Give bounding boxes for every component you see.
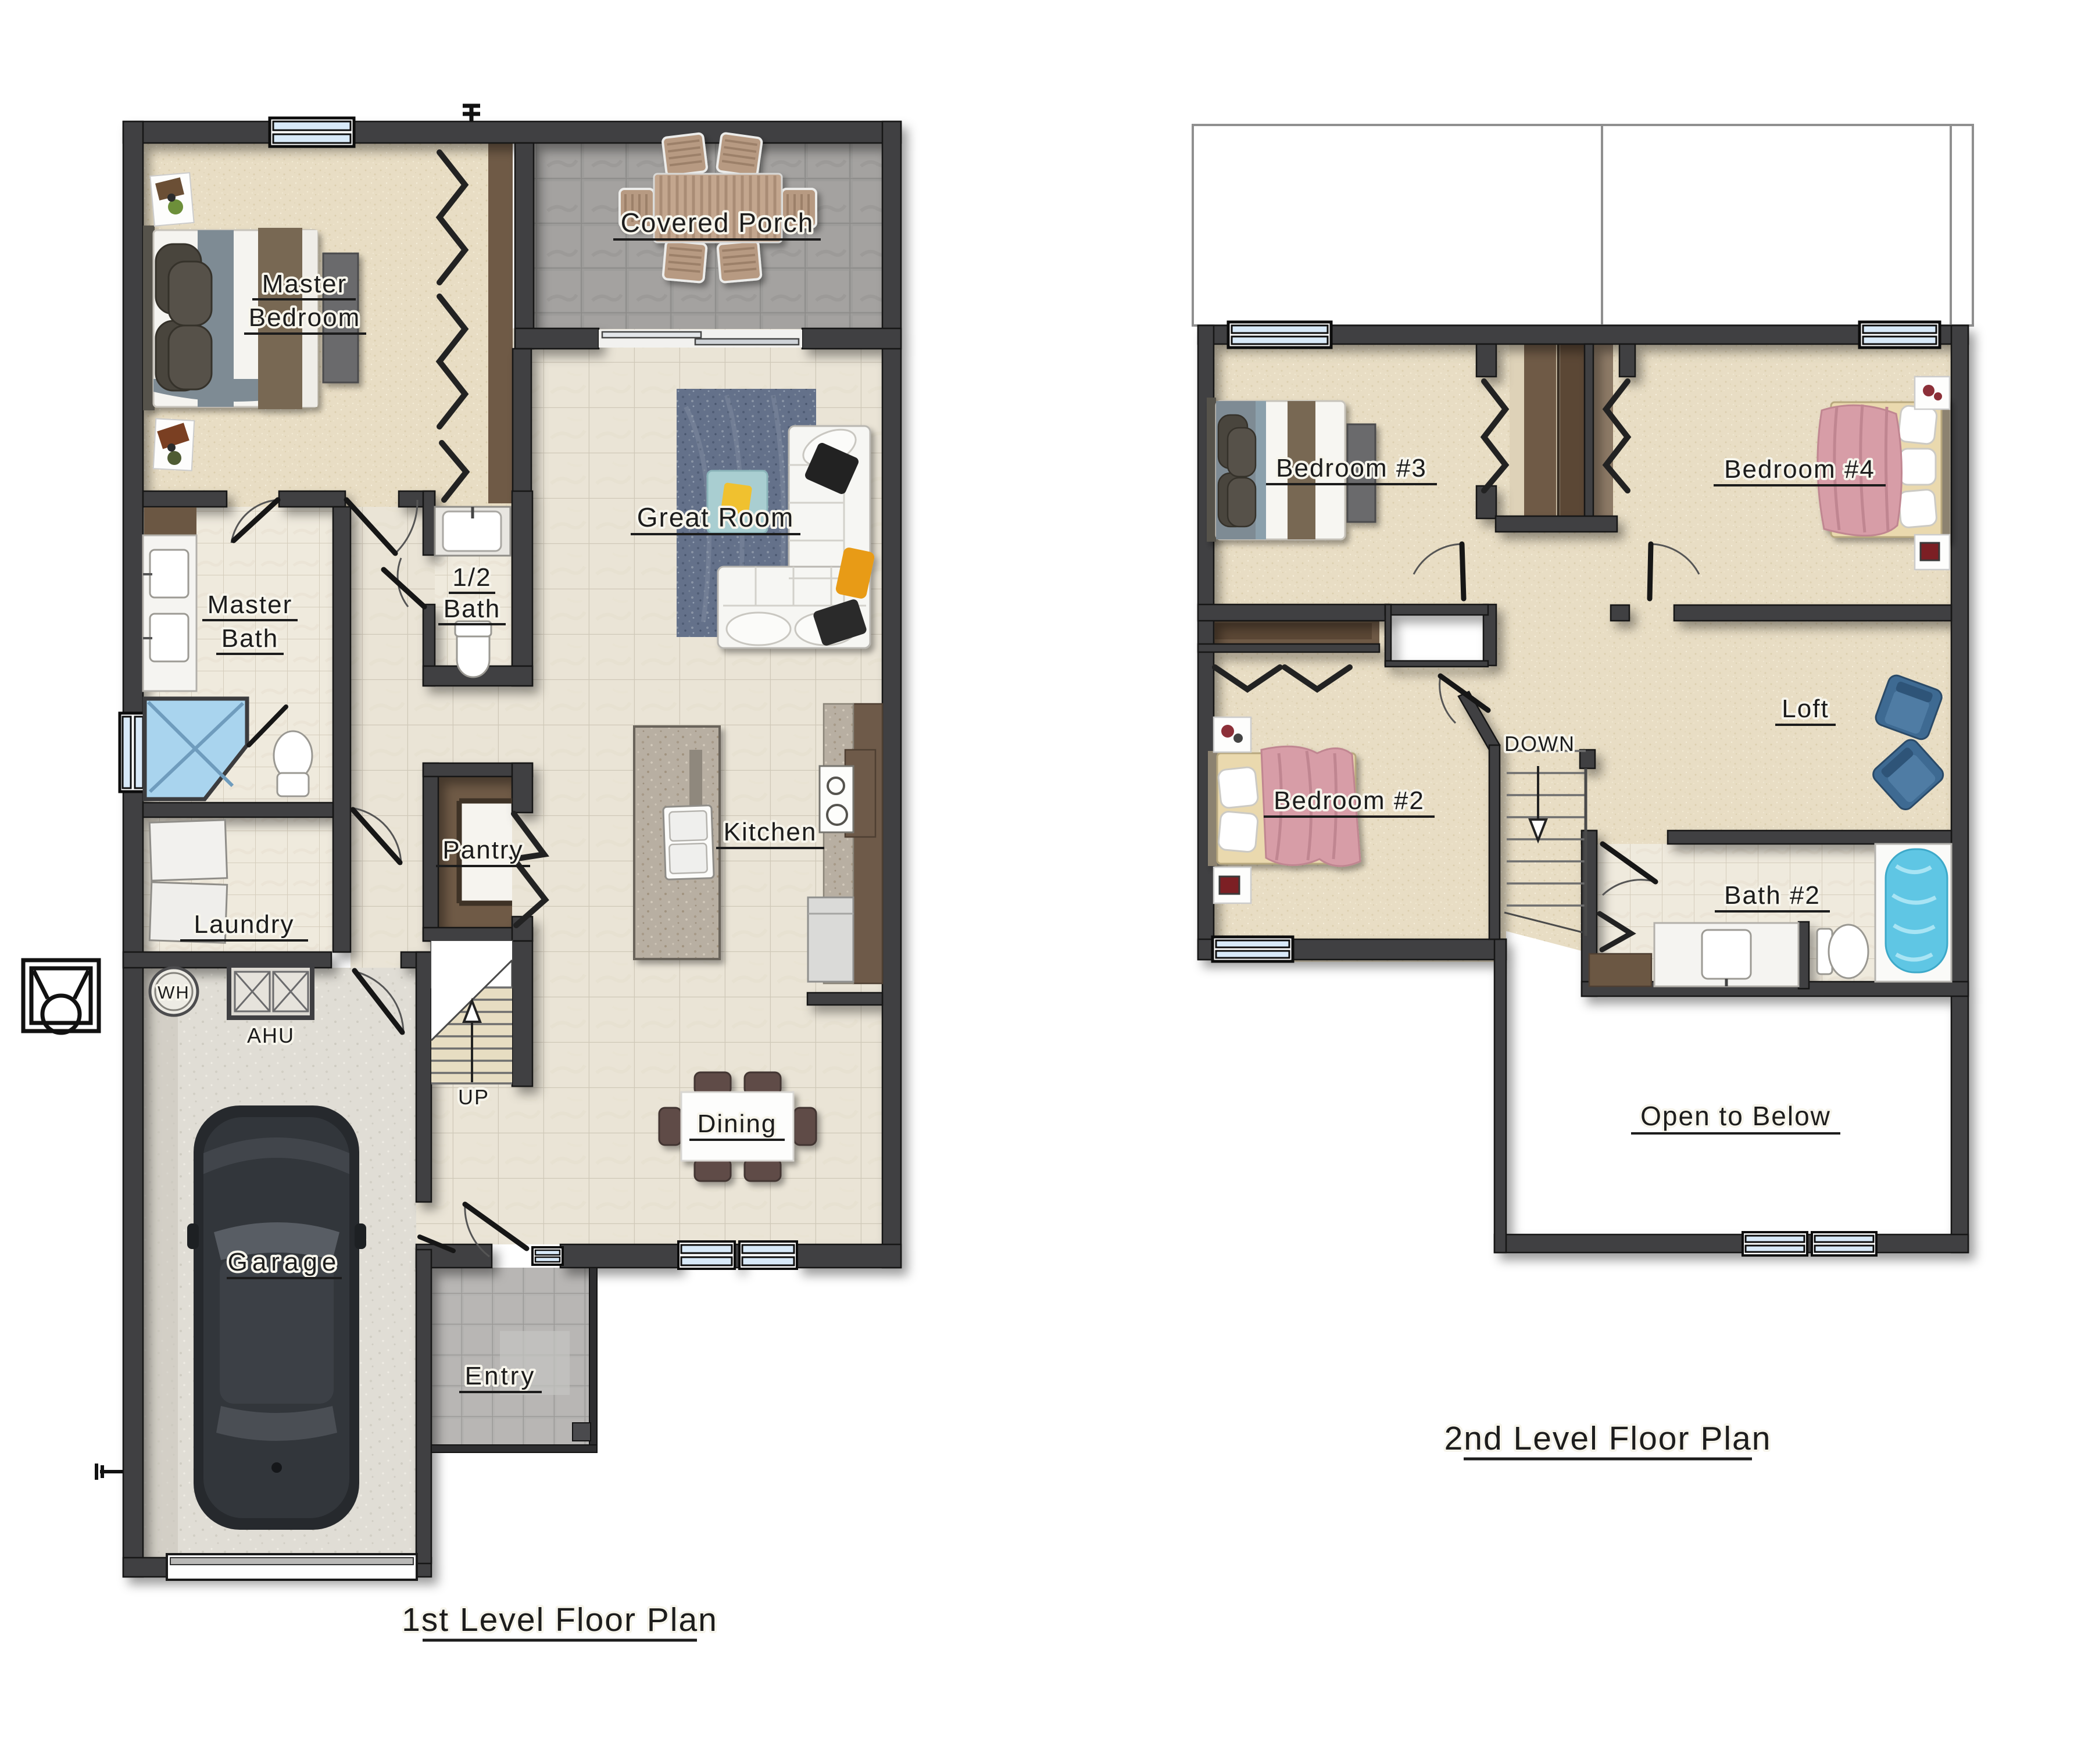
svg-text:2nd Level Floor Plan: 2nd Level Floor Plan — [1444, 1420, 1772, 1457]
svg-text:UP: UP — [458, 1085, 489, 1109]
svg-text:Bath: Bath — [444, 595, 501, 623]
svg-text:Open to Below: Open to Below — [1640, 1101, 1831, 1131]
svg-text:Garage: Garage — [228, 1248, 341, 1276]
svg-text:Bedroom #2: Bedroom #2 — [1274, 786, 1425, 815]
svg-text:Master: Master — [208, 591, 292, 619]
svg-text:Bath #2: Bath #2 — [1724, 881, 1821, 910]
svg-text:Master: Master — [262, 270, 347, 298]
svg-text:Kitchen: Kitchen — [724, 818, 817, 846]
svg-text:Bath: Bath — [221, 624, 279, 653]
svg-text:Bedroom #4: Bedroom #4 — [1724, 455, 1875, 484]
svg-text:Loft: Loft — [1782, 695, 1829, 723]
svg-text:1st Level Floor Plan: 1st Level Floor Plan — [402, 1601, 718, 1638]
svg-text:DOWN: DOWN — [1504, 732, 1575, 756]
svg-text:WH: WH — [158, 982, 190, 1003]
svg-text:Bedroom #3: Bedroom #3 — [1276, 454, 1427, 482]
svg-text:Covered Porch: Covered Porch — [621, 207, 814, 238]
svg-text:Entry: Entry — [465, 1362, 537, 1390]
svg-text:Great Room: Great Room — [637, 502, 795, 532]
svg-text:Laundry: Laundry — [194, 910, 294, 939]
svg-text:Dining: Dining — [698, 1110, 777, 1138]
svg-text:Pantry: Pantry — [442, 836, 523, 864]
svg-text:1/2: 1/2 — [452, 563, 491, 592]
svg-text:AHU: AHU — [247, 1024, 295, 1047]
svg-text:Bedroom: Bedroom — [249, 303, 361, 332]
